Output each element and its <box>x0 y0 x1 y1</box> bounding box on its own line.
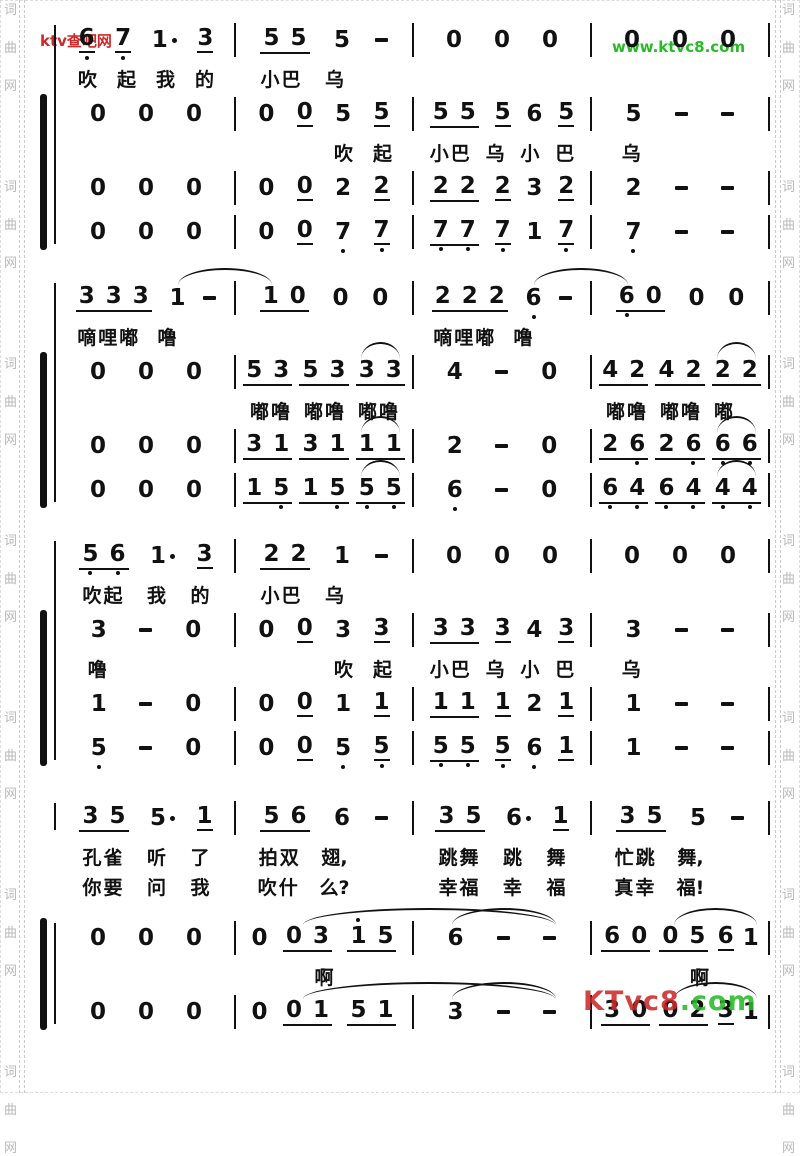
dash-glyph <box>675 702 688 706</box>
measure: 00315 <box>236 925 412 952</box>
dash-glyph <box>495 370 508 374</box>
octave-dot-low <box>380 248 384 252</box>
lyric-syllable: 幸 <box>503 879 522 898</box>
slur <box>178 268 272 285</box>
lyric-syllable: 吹 <box>334 661 353 680</box>
rest: 0 <box>541 361 557 384</box>
lyric-syllable <box>185 403 204 422</box>
notation-row: 00031311120262666 <box>58 428 770 464</box>
score: 6713555000000吹起我的小巴乌 0000055555655 吹起小巴乌… <box>58 22 770 1038</box>
lyric-syllable <box>541 587 560 606</box>
measure: 小巴乌小巴 <box>414 661 590 680</box>
system-bracket <box>40 94 47 250</box>
lyric-syllable: 噜 <box>514 329 533 348</box>
lyric-syllable <box>671 329 690 348</box>
dash-hold <box>721 230 734 234</box>
dash-glyph <box>721 702 734 706</box>
note: 3 <box>558 617 574 643</box>
beam-group: 11 <box>356 433 405 460</box>
measure: 嘀哩嘟噜 <box>414 329 590 348</box>
lyric-syllable: 翅, <box>321 849 347 868</box>
beam-group: 35 <box>435 805 484 832</box>
beam-group: 42 <box>655 359 704 386</box>
side-watermark-char: 网 <box>782 434 795 447</box>
lyric-syllable <box>444 587 463 606</box>
lyric-syllable: 福 <box>547 879 566 898</box>
note: 1 <box>386 433 402 456</box>
lyric-row: 你要问我吹什么? 幸福幸福真幸福! <box>58 874 770 902</box>
octave-dot-low <box>439 247 443 251</box>
rest: 0 <box>90 927 106 950</box>
notation-row: 500055555611 <box>58 730 770 766</box>
rest: 0 <box>720 29 736 52</box>
rest: 0 <box>290 285 306 308</box>
lyric-syllable <box>185 969 204 988</box>
augmentation-dot <box>172 38 177 43</box>
lyric-syllable <box>444 71 463 90</box>
lyric-syllable: 舞 <box>547 849 566 868</box>
measure: 6000 <box>592 285 768 312</box>
rest: 0 <box>720 545 736 568</box>
lyric-syllable: 哩 <box>98 329 117 348</box>
measure: 小巴乌 <box>236 587 412 606</box>
lyric-syllable <box>88 969 107 988</box>
barline <box>768 63 770 97</box>
beam-group: 333 <box>76 285 152 312</box>
measure: 0055 <box>236 101 412 127</box>
dash-glyph <box>675 628 688 632</box>
note: 2 <box>629 359 645 382</box>
dash-glyph <box>203 296 216 300</box>
notation-row: 100011111211 <box>58 686 770 722</box>
rest: 0 <box>90 221 106 244</box>
lyric-syllable: 啊 <box>314 969 333 988</box>
dash-glyph <box>721 230 734 234</box>
note: 6 <box>506 807 531 830</box>
note: 7 <box>335 221 351 244</box>
barline <box>768 871 770 905</box>
dash-hold <box>675 186 688 190</box>
measure: 啊 <box>592 969 768 988</box>
note: 5 <box>110 805 126 828</box>
left-dashed-guide <box>19 0 25 1093</box>
octave-dot-low <box>532 315 536 319</box>
measure: 60 <box>414 479 590 502</box>
lyric-row: 嘟噜嘟噜嘟噜 嘟噜嘟噜嘟 <box>58 398 770 426</box>
rest: 0 <box>258 177 274 200</box>
barline <box>768 137 770 171</box>
dash-glyph <box>675 230 688 234</box>
note: 6 <box>447 927 463 950</box>
beam-group: 56 <box>260 805 309 832</box>
syllable-group: 吹起 <box>82 587 122 606</box>
lyric-syllable: 嘟 <box>304 403 323 422</box>
measure: 000 <box>58 177 234 200</box>
measure: 吹起 <box>236 145 412 164</box>
syllable-group: 小巴 <box>260 71 300 90</box>
lyric-syllable: 真 <box>614 879 633 898</box>
side-watermark-char: 网 <box>782 965 795 978</box>
notation-row: 00015155560646444 <box>58 472 770 508</box>
lyric-syllable: 哩 <box>454 329 473 348</box>
lyric-syllable <box>671 587 690 606</box>
note: 5 <box>273 477 289 500</box>
lyric-syllable: 舞 <box>460 849 479 868</box>
lyric-syllable: 嘟 <box>250 403 269 422</box>
note: 2 <box>685 359 701 382</box>
dash-glyph <box>543 936 556 940</box>
note: 2 <box>435 285 451 308</box>
lyric-syllable <box>444 403 463 422</box>
note: 7 <box>460 219 476 242</box>
barline <box>768 395 770 429</box>
measure <box>414 587 590 606</box>
notation-row: 000003156600561 <box>58 920 770 956</box>
note: 5 <box>647 805 663 828</box>
lyric-syllable <box>541 403 560 422</box>
lyric-syllable: 起 <box>373 145 392 164</box>
note: 2 <box>602 433 618 456</box>
octave-dot-low <box>466 763 470 767</box>
rest: 0 <box>258 737 274 760</box>
measure <box>58 145 234 164</box>
measure: 000 <box>414 29 590 52</box>
lyric-syllable <box>670 145 689 164</box>
lyric-syllable: 嘟 <box>606 403 625 422</box>
side-watermark-char: 曲 <box>4 1104 17 1117</box>
rest: 0 <box>251 1001 267 1024</box>
note: 3 <box>329 359 345 382</box>
lyric-row: 噜 吹起小巴乌小巴乌 <box>58 656 770 684</box>
system-barline <box>54 803 56 830</box>
side-watermark-char: 词 <box>4 889 17 902</box>
syllable-group: 跳舞 <box>438 849 478 868</box>
lyric-syllable: 听 <box>147 849 166 868</box>
rest: 0 <box>297 691 313 717</box>
dash-glyph <box>543 1010 556 1014</box>
beam-group: 35 <box>79 805 128 832</box>
note: 5 <box>329 477 345 500</box>
note: 5 <box>334 29 350 52</box>
lyric-syllable: 要 <box>104 879 123 898</box>
lyric-row: 吹起我的小巴乌 <box>58 582 770 610</box>
beam-group: 33 <box>430 617 479 644</box>
octave-dot-low <box>453 507 457 511</box>
dash-hold <box>375 554 388 558</box>
rest: 0 <box>186 1001 202 1024</box>
rest: 0 <box>286 999 302 1022</box>
barline <box>768 215 770 249</box>
measure: 6 <box>414 927 590 950</box>
measure: 646444 <box>592 477 768 504</box>
notation-row: 0000055555655 <box>58 96 770 132</box>
lyric-syllable: 跳 <box>438 849 457 868</box>
lyric-syllable: 起 <box>117 71 136 90</box>
side-watermark-char: 词 <box>782 712 795 725</box>
measure: 000 <box>58 479 234 502</box>
lyric-syllable <box>295 661 314 680</box>
note: 6 <box>718 925 734 951</box>
beam-group: 22 <box>260 543 309 570</box>
system-barline <box>54 283 56 502</box>
beam-group: 60 <box>601 925 650 952</box>
note: 4 <box>685 477 701 500</box>
note: 1 <box>302 477 318 500</box>
rest: 0 <box>251 927 267 950</box>
measure: 0033 <box>236 617 412 643</box>
note: 1 <box>329 433 345 456</box>
lyric-syllable <box>315 329 334 348</box>
measure: 乌 <box>592 661 768 680</box>
dash-glyph <box>721 186 734 190</box>
note: 3 <box>438 805 454 828</box>
note: 2 <box>715 359 731 382</box>
note: 1 <box>152 29 177 52</box>
barline <box>768 473 770 507</box>
side-watermark-char: 曲 <box>782 573 795 586</box>
octave-dot-low <box>365 505 369 509</box>
lyric-syllable: 拍 <box>259 849 278 868</box>
measure: 262666 <box>592 433 768 460</box>
barline <box>768 429 770 463</box>
octave-dot-low <box>341 765 345 769</box>
note: 3 <box>133 285 149 308</box>
lyric-syllable: 嘀 <box>77 329 96 348</box>
note: 1 <box>313 999 329 1022</box>
system-barline <box>54 25 56 244</box>
octave-dot-low <box>635 461 639 465</box>
note: 3 <box>526 177 542 200</box>
measure: 77717 <box>414 219 590 246</box>
lyric-row: 吹起小巴乌小巴乌 <box>58 140 770 168</box>
note: 6 <box>334 807 350 830</box>
dash-hold <box>731 816 744 820</box>
syllable-group: 嘀哩嘟 <box>433 329 494 348</box>
lyric-syllable: 噜 <box>325 403 344 422</box>
lyric-syllable <box>185 661 204 680</box>
lyric-syllable <box>88 145 107 164</box>
measure <box>592 71 768 90</box>
side-watermark-char: 词 <box>4 4 17 17</box>
note: 1 <box>246 477 262 500</box>
lyric-syllable <box>651 969 670 988</box>
note: 6 <box>526 737 542 760</box>
dash-glyph <box>675 746 688 750</box>
lyric-syllable <box>88 403 107 422</box>
side-watermark-char: 网 <box>4 1142 17 1155</box>
measure: 424222 <box>592 359 768 386</box>
system-bracket <box>40 918 47 1030</box>
measure: 5 <box>592 103 768 126</box>
octave-dot-low <box>279 505 283 509</box>
lyric-syllable: 巴 <box>282 71 301 90</box>
beam-group: 33 <box>356 359 405 386</box>
measure: 000 <box>58 361 234 384</box>
note: 3 <box>447 1001 463 1024</box>
rest: 0 <box>258 619 274 642</box>
note: 1 <box>334 545 350 568</box>
side-watermark-char: 词 <box>782 4 795 17</box>
note: 6 <box>629 433 645 456</box>
note: 5 <box>625 103 641 126</box>
note: 3 <box>302 433 318 456</box>
octave-dot-low <box>691 505 695 509</box>
lyric-syllable <box>493 71 512 90</box>
note: 5 <box>689 925 705 948</box>
note: 5 <box>82 543 98 566</box>
barline <box>768 23 770 57</box>
rest: 0 <box>138 103 154 126</box>
lyric-syllable <box>622 587 641 606</box>
measure: 跳舞跳舞 <box>414 849 590 868</box>
note: 5 <box>291 27 307 50</box>
note: 3 <box>625 619 641 642</box>
note: 5 <box>433 101 449 124</box>
dash-hold <box>675 746 688 750</box>
measure: 1000 <box>236 285 412 312</box>
measure: 20 <box>414 435 590 458</box>
rest: 0 <box>542 545 558 568</box>
note: 2 <box>433 175 449 198</box>
syllable-group: 幸福 <box>438 879 478 898</box>
note: 6 <box>447 479 463 502</box>
note: 2 <box>526 693 542 716</box>
measure: 小巴乌小巴 <box>414 145 590 164</box>
beam-group: 35 <box>616 805 665 832</box>
dash-glyph <box>139 628 152 632</box>
note: 4 <box>658 359 674 382</box>
note: 5 <box>246 359 262 382</box>
rest: 0 <box>333 287 349 310</box>
note: 3 <box>386 359 402 382</box>
beam-group: 31 <box>243 433 292 460</box>
lyric-syllable <box>370 849 389 868</box>
measure: 7 <box>592 221 768 244</box>
side-watermark-char: 词 <box>4 712 17 725</box>
right-watermark-column: 词曲网词曲网词曲网词曲网词曲网词曲网词曲网 <box>780 0 800 1093</box>
note: 2 <box>374 175 390 201</box>
syllable-group: 嘟噜 <box>250 403 290 422</box>
side-watermark-char: 网 <box>782 80 795 93</box>
note: 1 <box>263 285 279 308</box>
rest: 0 <box>258 103 274 126</box>
lyric-syllable: 起 <box>373 661 392 680</box>
lyric-syllable: 吹 <box>78 71 97 90</box>
side-watermark-char: 曲 <box>4 396 17 409</box>
lyric-syllable <box>727 879 746 898</box>
dash-hold <box>721 112 734 116</box>
dash-glyph <box>721 746 734 750</box>
measure: 30 <box>58 619 234 642</box>
lyric-syllable: 巴 <box>282 587 301 606</box>
note: 5 <box>374 735 390 761</box>
measure: 000 <box>414 545 590 568</box>
augmentation-dot <box>526 816 531 821</box>
lyric-syllable <box>541 71 560 90</box>
rest: 0 <box>494 29 510 52</box>
dash-hold <box>497 1010 510 1014</box>
barline <box>768 579 770 613</box>
lyric-syllable: 小 <box>520 661 539 680</box>
lyric-syllable: 乌 <box>622 661 641 680</box>
dash-glyph <box>721 628 734 632</box>
lyric-syllable <box>493 403 512 422</box>
dash-glyph <box>495 488 508 492</box>
note: 2 <box>558 175 574 201</box>
measure: 3 <box>592 619 768 642</box>
note: 1 <box>377 999 393 1022</box>
measure <box>592 587 768 606</box>
dash-glyph <box>139 702 152 706</box>
syllable-group: 忙跳 <box>615 849 655 868</box>
dash-hold <box>721 702 734 706</box>
note: 6 <box>110 543 126 566</box>
beam-group: 55 <box>430 735 479 762</box>
octave-dot-low <box>691 461 695 465</box>
beam-group: 22 <box>430 175 479 202</box>
rest: 0 <box>258 693 274 716</box>
rest: 0 <box>689 287 705 310</box>
dash-glyph <box>497 1010 510 1014</box>
note: 2 <box>335 177 351 200</box>
note: 1 <box>526 221 542 244</box>
lyric-syllable <box>369 71 388 90</box>
measure: 22232 <box>414 175 590 202</box>
note: 1 <box>433 691 449 714</box>
rest: 0 <box>646 285 662 308</box>
measure: 000 <box>58 435 234 458</box>
note: 5 <box>377 925 393 948</box>
dash-hold <box>139 702 152 706</box>
lyric-syllable: 乌 <box>486 661 505 680</box>
rest: 0 <box>90 103 106 126</box>
note: 5 <box>460 735 476 758</box>
dash-hold <box>495 370 508 374</box>
lyric-syllable: 噜 <box>681 403 700 422</box>
dash-hold <box>675 702 688 706</box>
note: 3 <box>374 617 390 643</box>
lyric-syllable: 噜 <box>88 661 107 680</box>
measure: 吹起 <box>236 661 412 680</box>
syllable-group: 嘟噜 <box>660 403 700 422</box>
octave-dot-low <box>721 505 725 509</box>
beam-group: 26 <box>655 433 704 460</box>
notation-row: 00053533340424222 <box>58 354 770 390</box>
octave-dot-low <box>608 505 612 509</box>
note: 4 <box>447 361 463 384</box>
note: 5 <box>150 807 175 830</box>
note: 1 <box>150 545 175 568</box>
rest: 0 <box>90 435 106 458</box>
beam-group: 55 <box>430 101 479 128</box>
octave-dot-low <box>635 505 639 509</box>
measure: 566 <box>236 805 412 832</box>
beam-group: 44 <box>712 477 761 504</box>
note: 2 <box>489 285 505 308</box>
barline <box>768 687 770 721</box>
rest: 0 <box>138 361 154 384</box>
note: 4 <box>602 359 618 382</box>
lyric-syllable <box>256 145 275 164</box>
side-watermark-char: 词 <box>4 358 17 371</box>
measure: 00151 <box>236 999 412 1026</box>
lyric-syllable <box>671 71 690 90</box>
measure <box>414 403 590 422</box>
barline <box>768 355 770 389</box>
note: 2 <box>291 543 307 566</box>
note: 1 <box>558 735 574 761</box>
rest: 0 <box>138 435 154 458</box>
